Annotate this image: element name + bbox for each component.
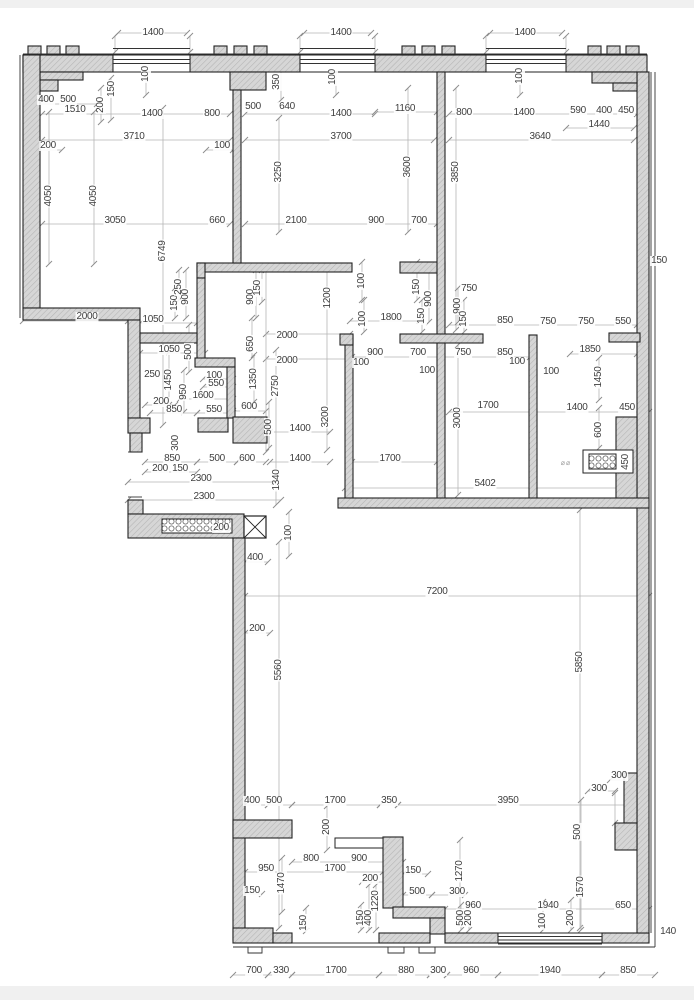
wall-segment	[624, 773, 637, 823]
wall-segment	[345, 335, 353, 507]
wall-segment	[140, 333, 197, 343]
wall-segment	[393, 907, 445, 918]
wall-segment	[375, 55, 486, 72]
wall-segment	[197, 263, 352, 272]
wall-segment	[40, 80, 58, 91]
wall-segment	[273, 933, 292, 943]
wall-segment	[615, 823, 637, 850]
wall-segment	[379, 933, 430, 943]
wall-segment	[383, 837, 403, 908]
wall-segment	[233, 538, 245, 940]
facade-notch	[248, 947, 262, 953]
vent-grille-horizontal	[162, 519, 232, 533]
wall-segment	[40, 72, 83, 80]
wall-segment	[23, 55, 40, 308]
wall-segment	[445, 933, 498, 943]
wall-segment	[197, 263, 205, 278]
wall-segment	[566, 55, 647, 72]
wall-segment	[592, 72, 637, 83]
low-partition	[335, 838, 383, 848]
wall-segment	[340, 334, 353, 345]
wall-segment	[602, 933, 649, 943]
vent-grille-right-wall	[589, 454, 616, 469]
floor-plan-drawing	[0, 0, 694, 1000]
floor-plan: 1400140014004005001510200150100140080037…	[0, 0, 694, 1000]
window-bottom	[498, 933, 602, 943]
wall-segment	[437, 72, 445, 507]
wall-segment	[613, 83, 637, 91]
wall-segment	[198, 418, 228, 432]
wall-segment	[227, 367, 235, 418]
wall-segment	[233, 90, 241, 263]
wall-segment	[128, 418, 150, 433]
wall-segment	[23, 308, 140, 320]
facade-notch	[419, 947, 435, 953]
wall-segment	[233, 820, 292, 838]
wall-segment	[233, 928, 273, 943]
wall-segment	[609, 333, 640, 342]
wall-segment	[430, 918, 445, 934]
wall-segment	[529, 335, 537, 507]
wall-segment	[128, 500, 143, 514]
wall-segment	[233, 417, 267, 443]
wall-segment	[190, 55, 300, 72]
wall-segment	[130, 433, 142, 452]
facade-notch	[388, 947, 404, 953]
walls-layer	[23, 46, 649, 943]
wall-segment	[400, 334, 483, 343]
wall-segment	[230, 72, 266, 90]
wall-segment	[338, 498, 649, 508]
wall-segment	[128, 320, 140, 418]
wall-segment	[195, 358, 235, 367]
wall-segment	[197, 278, 205, 364]
